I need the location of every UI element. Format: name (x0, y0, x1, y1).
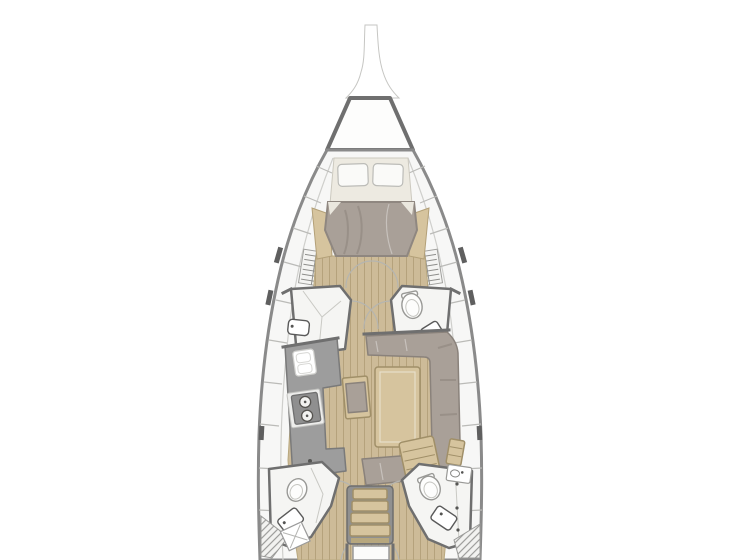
stair-tread (350, 525, 390, 536)
berth-duvet (325, 202, 417, 256)
anchor-locker (327, 98, 413, 150)
bowsprit (346, 25, 399, 98)
pillow (373, 163, 404, 186)
salon-table (375, 367, 420, 447)
latch-dot (455, 506, 458, 509)
stove (287, 389, 325, 428)
hull-window (477, 426, 483, 440)
sink-basin (287, 319, 309, 336)
latch-dot (456, 528, 459, 531)
galley-sink-unit (292, 349, 316, 377)
hull-window (259, 426, 265, 440)
pillow (338, 163, 369, 186)
hull-window (468, 290, 476, 306)
hull-window (458, 247, 467, 264)
bench-seat (342, 376, 370, 419)
stair-tread (353, 489, 387, 499)
sailboat-floor-plan (0, 0, 747, 560)
vanity (446, 464, 472, 483)
port-sink (287, 319, 309, 336)
stair-tread (351, 513, 389, 523)
side-shelf (446, 439, 465, 466)
floor-plan-canvas (0, 0, 747, 560)
latch-dot (455, 482, 458, 485)
bench-cushion (346, 382, 367, 413)
shelf-top (446, 439, 465, 466)
stair-tread (352, 501, 388, 511)
stair-base (351, 538, 389, 543)
companionway (347, 486, 393, 560)
engine-panel (353, 546, 389, 560)
bow (327, 25, 413, 150)
